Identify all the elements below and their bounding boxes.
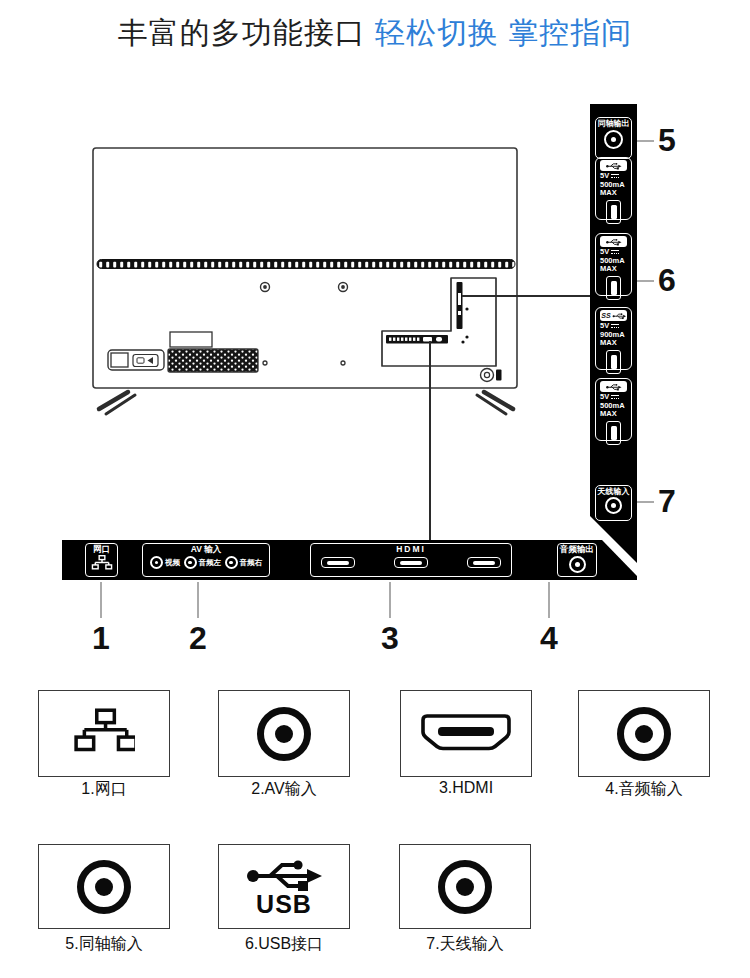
hdmi-port-icon	[321, 557, 355, 568]
hdmi-label: HDMI	[396, 544, 426, 555]
side-ports-callout-line	[462, 295, 590, 297]
usb3-ss-icon: SS	[600, 310, 627, 321]
legend-box-av	[218, 690, 350, 777]
bottom-port-bar: 网口 AV 输入 视频	[62, 540, 637, 580]
side-port-panel: 同轴输出 5V 500mA MAX 5V 500mA MAX	[590, 104, 637, 563]
usb-icon	[600, 381, 627, 392]
av-video-port: 视频	[150, 556, 180, 569]
av-input-label: AV 输入	[191, 544, 222, 555]
usb-1-socket	[606, 200, 621, 224]
callout-number-6: 6	[658, 262, 676, 299]
tv-power-inlet	[108, 350, 164, 370]
callout-line-5	[637, 140, 654, 142]
av-audio-left-port: 音频左	[184, 556, 222, 569]
hdmi-ports-row	[311, 555, 511, 568]
usb-port-2: 5V 500mA MAX	[595, 233, 632, 296]
lan-label: 网口	[93, 544, 110, 555]
dc-symbol	[611, 248, 619, 255]
tv-ports-infographic: { "title": { "black": "丰富的多功能接口", "blue"…	[0, 0, 750, 978]
hdmi-icon	[419, 712, 513, 756]
legend-label-lan: 1.网口	[38, 779, 170, 800]
rca-icon	[257, 707, 311, 761]
hdmi-section: HDMI	[310, 543, 512, 577]
ethernet-icon	[73, 707, 135, 761]
callout-line-4	[548, 582, 550, 618]
rca-port-icon	[184, 556, 197, 569]
antenna-port-icon	[605, 497, 622, 514]
antenna-in-label: 天线输入	[598, 486, 630, 497]
usb-port-1: 5V 500mA MAX	[595, 157, 632, 220]
usb-icon	[600, 236, 627, 247]
dc-symbol	[611, 393, 619, 400]
lan-port: 网口	[85, 543, 118, 577]
legend-box-usb: USB	[218, 844, 350, 929]
legend-box-audio-in	[578, 690, 710, 777]
callout-line-2	[197, 582, 199, 618]
legend-label-coax: 5.同轴输入	[38, 934, 170, 955]
page-title-black: 丰富的多功能接口	[118, 16, 366, 49]
callout-number-1: 1	[92, 620, 110, 657]
rca-port-icon	[150, 556, 163, 569]
hdmi-port-icon	[394, 557, 428, 568]
bottom-ports-callout-line	[429, 341, 431, 540]
callout-line-6	[637, 280, 654, 282]
legend-label-av: 2.AV输入	[218, 779, 350, 800]
av-ports-row: 视频 音频左 音频右	[143, 555, 269, 569]
legend-label-audio-in: 4.音频输入	[578, 779, 710, 800]
rca-icon	[77, 860, 131, 914]
av-audio-right-port: 音频右	[225, 556, 263, 569]
usb-port-3: SS 5V 900mA MAX	[595, 307, 632, 370]
legend-box-hdmi	[400, 690, 532, 777]
hdmi-port-icon	[467, 557, 501, 568]
usb-icon	[600, 160, 627, 171]
audio-port-icon	[569, 556, 586, 573]
audio-out-label: 音频输出	[560, 544, 594, 555]
callout-number-2: 2	[189, 620, 207, 657]
usb-icon: USB	[244, 856, 324, 917]
usb-3-socket	[606, 350, 621, 374]
usb-4-socket	[606, 421, 621, 445]
coax-out-label: 同轴输出	[598, 118, 630, 129]
page-title-blue: 轻松切换 掌控指间	[375, 16, 632, 49]
tv-rear-drawing	[90, 143, 522, 418]
page-title: 丰富的多功能接口 轻松切换 掌控指间	[0, 13, 750, 54]
tv-illustration	[90, 143, 522, 418]
legend-label-hdmi: 3.HDMI	[400, 779, 532, 797]
usb-2-spec: 5V 500mA MAX	[596, 248, 631, 274]
callout-line-7	[637, 501, 654, 503]
legend-label-usb: 6.USB接口	[218, 934, 350, 955]
callout-number-3: 3	[381, 620, 399, 657]
tv-vent-strip	[97, 260, 515, 269]
tv-vent-grille	[168, 349, 258, 372]
audio-out-port: 音频输出	[557, 543, 597, 577]
usb-3-spec: 5V 900mA MAX	[596, 322, 631, 348]
ethernet-icon	[91, 555, 113, 572]
dc-symbol	[611, 322, 619, 329]
callout-number-4: 4	[540, 620, 558, 657]
legend-box-antenna	[399, 844, 531, 929]
coax-port-icon	[604, 130, 623, 149]
legend-box-coax	[38, 844, 170, 929]
callout-number-7: 7	[658, 483, 676, 520]
tv-feet	[99, 392, 513, 414]
legend-box-lan	[38, 690, 170, 777]
callout-line-1	[100, 582, 102, 618]
callout-number-5: 5	[658, 122, 676, 159]
rca-icon	[438, 860, 492, 914]
usb-port-4: 5V 500mA MAX	[595, 378, 632, 441]
usb-4-spec: 5V 500mA MAX	[596, 393, 631, 419]
dc-symbol	[611, 172, 619, 179]
rca-port-icon	[225, 556, 238, 569]
usb-2-socket	[606, 276, 621, 300]
tv-logo	[481, 369, 502, 382]
tv-side-port-slot	[457, 282, 463, 329]
rca-icon	[617, 707, 671, 761]
callout-line-3	[389, 582, 391, 618]
av-input-section: AV 输入 视频 音频左 音频右	[142, 543, 270, 577]
tv-rating-label	[170, 332, 212, 347]
usb-text: USB	[256, 892, 312, 917]
coax-out-port: 同轴输出	[595, 117, 632, 159]
legend-label-antenna: 7.天线输入	[399, 934, 531, 955]
usb-1-spec: 5V 500mA MAX	[596, 172, 631, 198]
antenna-in-port: 天线输入	[595, 485, 632, 521]
